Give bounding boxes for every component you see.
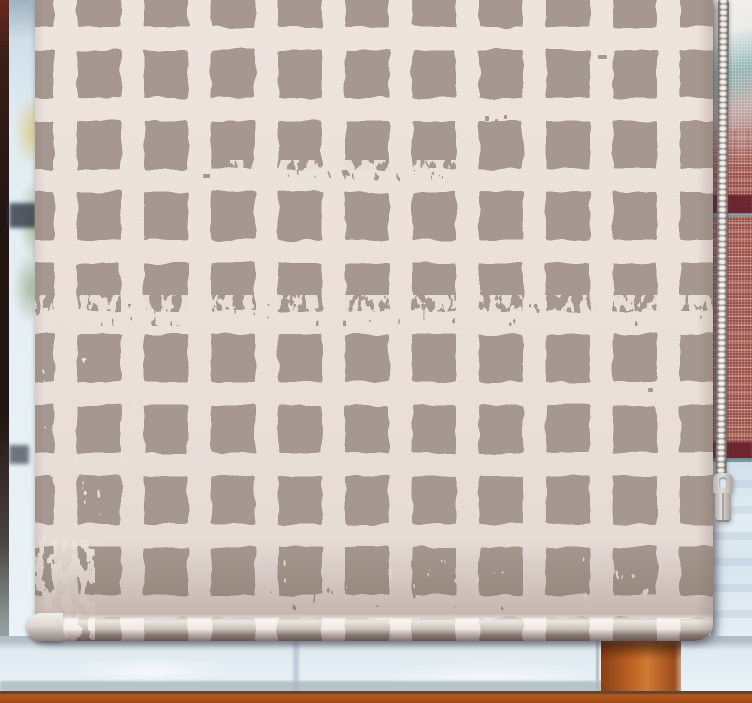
glass-dark-band-upper bbox=[9, 203, 36, 228]
blind-pattern bbox=[35, 0, 713, 641]
chain-connector bbox=[713, 473, 733, 523]
window-glass-left bbox=[9, 0, 36, 694]
chain-connector-hole bbox=[719, 477, 727, 489]
glass-dark-band-lower bbox=[9, 445, 29, 464]
chain-connector-body bbox=[715, 493, 731, 522]
chain-connector-loop bbox=[713, 473, 733, 494]
blind-roll-end-cap bbox=[27, 613, 63, 641]
window-sill bbox=[0, 691, 752, 703]
window-scene bbox=[0, 0, 752, 703]
roller-blind bbox=[35, 0, 713, 641]
